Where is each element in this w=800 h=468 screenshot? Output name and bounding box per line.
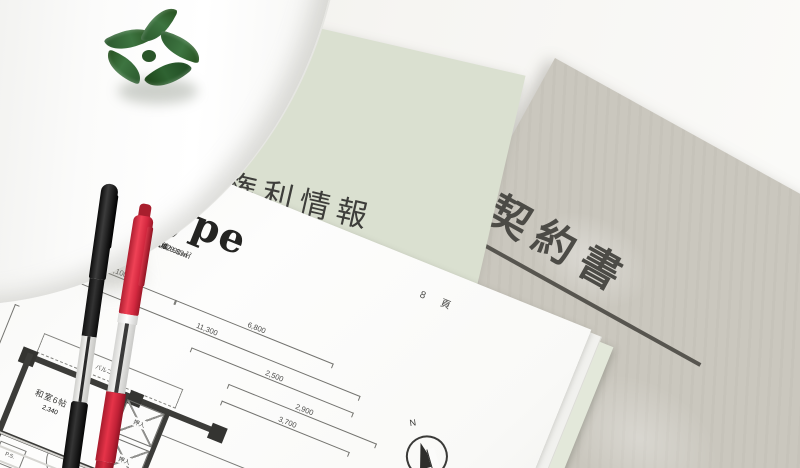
plan-line: [161, 434, 296, 468]
closet-label: 押入: [116, 454, 132, 468]
dim-label: 2,500: [264, 368, 285, 383]
dim-label: 2,900: [294, 402, 315, 417]
closet-label: 押入: [131, 416, 147, 430]
leaf-stem: [142, 50, 156, 62]
dimension-line: 1,800: [0, 304, 20, 387]
desk-surface: 契約書 登記権利情報 Ftype ●住居専有面積/82.90㎡ ●バルコニー面積…: [0, 0, 800, 468]
north-label: N: [409, 417, 417, 428]
dim-label: 3,700: [277, 415, 298, 430]
page-number: 8 頁: [418, 286, 460, 315]
dim-label: 6,800: [246, 320, 267, 335]
dim-label: 1,800: [0, 334, 1, 353]
dim-label: 11,300: [195, 321, 219, 338]
